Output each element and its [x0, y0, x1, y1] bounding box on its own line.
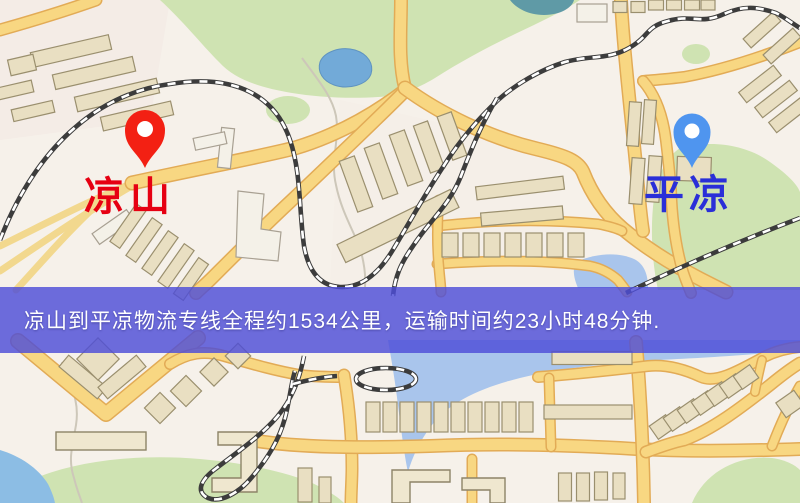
destination-pin-icon[interactable] — [670, 112, 714, 170]
route-info-text: 凉山到平凉物流专线全程约1534公里，运输时间约23小时48分钟. — [0, 305, 660, 335]
map-canvas[interactable] — [0, 0, 800, 503]
origin-label: 凉山 — [84, 177, 176, 217]
origin-pin-icon[interactable] — [121, 108, 169, 170]
map-view: 凉山 平凉 凉山到平凉物流专线全程约1534公里，运输时间约23小时48分钟. — [0, 0, 800, 503]
route-info-banner: 凉山到平凉物流专线全程约1534公里，运输时间约23小时48分钟. — [0, 287, 800, 353]
destination-label: 平凉 — [644, 175, 734, 215]
